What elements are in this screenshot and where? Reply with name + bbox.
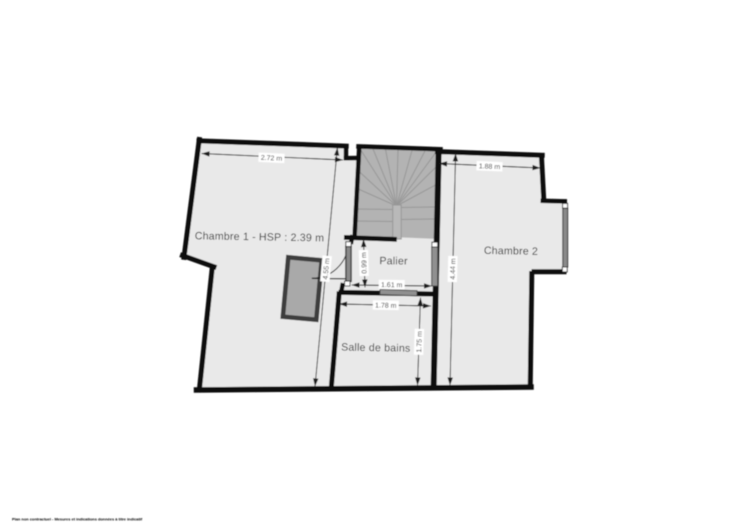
svg-text:Plan non contractuel - Mesures: Plan non contractuel - Mesures et indica… — [12, 516, 143, 521]
svg-text:1.78 m: 1.78 m — [375, 302, 397, 309]
svg-text:0.99 m: 0.99 m — [361, 252, 369, 274]
svg-text:1.75 m: 1.75 m — [416, 331, 424, 353]
svg-text:Salle de bains: Salle de bains — [341, 342, 411, 355]
svg-text:1.88 m: 1.88 m — [479, 163, 501, 171]
svg-text:4.44 m: 4.44 m — [450, 258, 458, 280]
svg-text:Palier: Palier — [379, 255, 408, 267]
svg-text:Chambre 1 - HSP : 2.39 m: Chambre 1 - HSP : 2.39 m — [195, 230, 325, 244]
svg-text:2.72 m: 2.72 m — [261, 155, 283, 163]
svg-text:Chambre 2: Chambre 2 — [484, 245, 538, 258]
svg-text:1.61 m: 1.61 m — [381, 282, 403, 289]
